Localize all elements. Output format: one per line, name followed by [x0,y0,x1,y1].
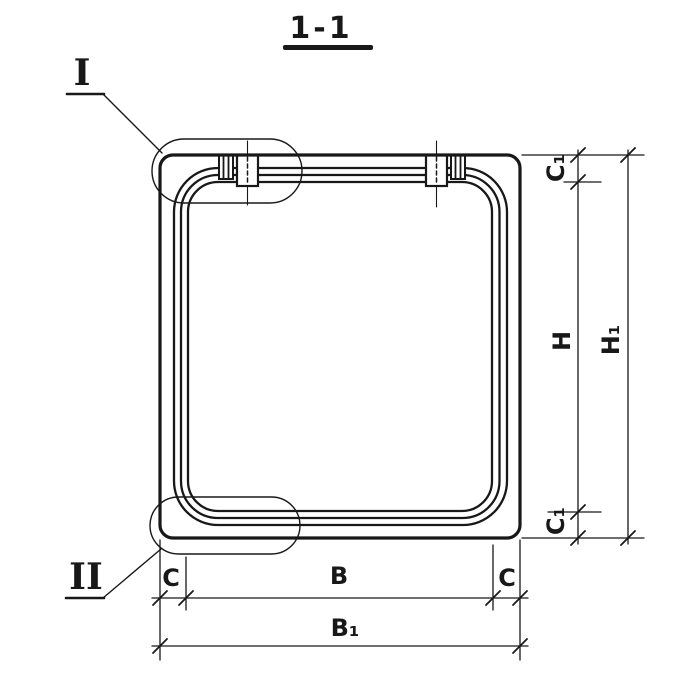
detail-1-leader [67,94,162,153]
dim-label-h1: H₁ [599,325,623,356]
dim-label-b: B [330,564,348,588]
cavity-inner-line [188,182,492,511]
detail-1-leader-line [103,94,162,153]
box-outer-contour [160,155,520,538]
section-drawing: 1-1 I II C₁ H H₁ C₁ C B C B₁ [0,0,700,700]
detail-2-leader-line [103,549,161,598]
section-title-underline [283,45,373,50]
dim-label-c-left: C [162,566,180,590]
detail-marker-2: II [69,559,103,595]
right-embed-anchor [426,141,465,207]
detail-marker-1: I [74,55,91,91]
left-embed-notch [219,155,233,179]
bottom-dimension-lines [152,540,528,660]
inner-cavity-contours [174,168,507,525]
left-embed-anchor [219,141,258,205]
right-embed-notch [451,155,465,179]
dim-label-h: H [550,331,574,351]
right-dimension-lines [522,148,644,545]
section-title: 1-1 [289,14,352,44]
dim-label-c-right: C [498,566,516,590]
dim-label-b1: B₁ [331,616,360,640]
cavity-outer-line [174,168,507,525]
dim-label-c1-bottom: C₁ [544,507,568,535]
dim-label-c1-top: C₁ [544,154,568,182]
drawing-linework [0,0,700,700]
cavity-middle-line [181,175,500,518]
